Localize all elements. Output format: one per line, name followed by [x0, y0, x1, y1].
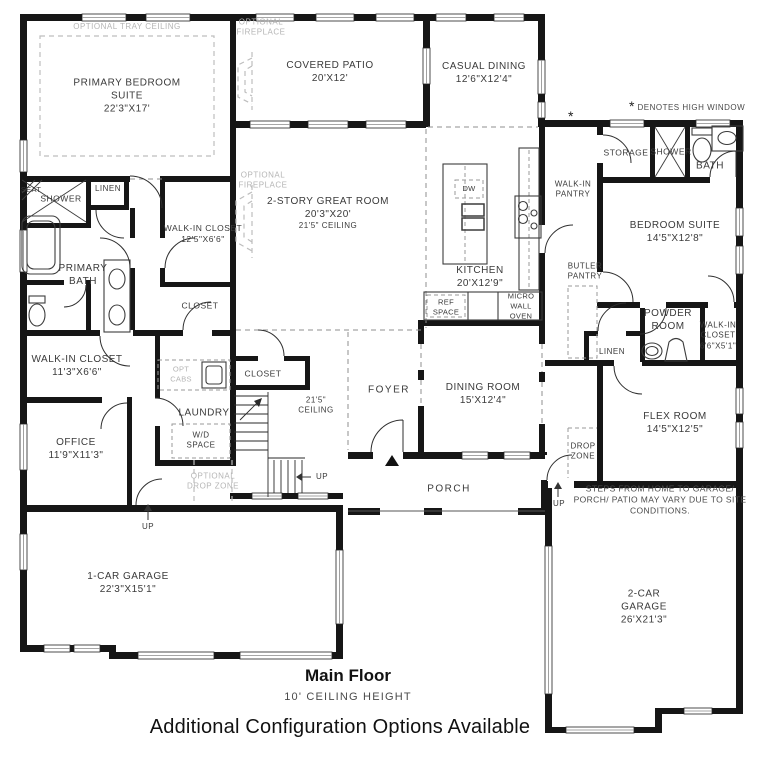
asterisk-icon: * — [629, 101, 634, 111]
hall-toilet — [692, 128, 712, 135]
ceiling-height-note: 10' CEILING HEIGHT — [284, 691, 412, 703]
room-walk-in-closet-primary: WALK-IN CLOSET 12'5"X6'6" — [162, 223, 244, 245]
optional-fireplace-label-patio: OPTIONAL FIREPLACE — [230, 18, 292, 39]
label-ref-space: REF SPACE — [429, 297, 463, 317]
front-door-marker — [385, 455, 399, 466]
room-walk-in-closet-hall: WALK-IN CLOSET 11'3"X6'6" — [31, 353, 123, 379]
powder-toilet — [665, 339, 687, 362]
room-butler-pantry: BUTLER PANTRY — [561, 262, 609, 283]
floor-plan-page: OPTIONAL TRAY CEILING PRIMARY BEDROOM SU… — [0, 0, 767, 771]
room-drop-zone: DROP ZONE — [565, 442, 601, 463]
kitchen-island — [443, 164, 487, 264]
label-micro-wall-oven: MICRO WALL OVEN — [502, 291, 540, 320]
optional-tray-ceiling-label: OPTIONAL TRAY CEILING — [42, 22, 212, 32]
room-primary-bedroom-suite: PRIMARY BEDROOM SUITE 22'3"X17' — [61, 77, 193, 116]
room-hall-closet: CLOSET — [170, 300, 230, 311]
room-foyer: FOYER — [354, 384, 424, 397]
room-office: OFFICE 11'9"X11'3" — [30, 436, 122, 462]
optional-fireplace-great-room — [236, 185, 252, 258]
site-conditions-note: STEPS FROM HOME TO GARAGE/ PORCH/ PATIO … — [572, 483, 748, 516]
room-kitchen: KITCHEN 20'X12'9" — [433, 264, 527, 290]
optional-fireplace-patio — [238, 52, 252, 110]
front-door — [371, 420, 403, 452]
room-primary-bath: PRIMARY BATH — [47, 262, 119, 288]
room-great-room: 2-STORY GREAT ROOM 20'3"X20' 21'5" CEILI… — [262, 195, 394, 231]
primary-toilet — [29, 296, 45, 303]
label-up-garage: UP — [136, 522, 160, 532]
room-name: PRIMARY BEDROOM SUITE — [61, 77, 193, 103]
room-dims: 22'3"X17' — [61, 103, 193, 116]
label-up-stairs: UP — [310, 472, 334, 482]
room-bedroom-suite: BEDROOM SUITE 14'5"X12'8" — [623, 219, 727, 245]
high-window-asterisk: * — [568, 108, 573, 124]
label-primary-shower: SHOWER — [31, 193, 91, 204]
room-hall-linen: LINEN — [589, 347, 635, 357]
room-hall-shower: SHOWER — [639, 146, 703, 157]
room-dining-room: DINING ROOM 15'X12'4" — [443, 381, 523, 407]
room-porch: PORCH — [409, 483, 489, 496]
label-opt-cabs: OPT CABS — [164, 364, 198, 384]
label-wd-space: W/D SPACE — [180, 431, 222, 452]
stair-arrowhead — [254, 398, 262, 407]
room-hall-bath: BATH — [685, 160, 735, 173]
room-flex-room: FLEX ROOM 14'5"X12'5" — [625, 410, 725, 436]
room-stair-closet: CLOSET — [233, 368, 293, 379]
room-walk-in-closet-bedroom: WALK-IN CLOSET 6'6"X5'1" — [689, 320, 747, 351]
room-laundry: LAUNDRY — [164, 407, 244, 420]
room-one-car-garage: 1-CAR GARAGE 22'3"X15'1" — [63, 570, 193, 596]
floor-title: Main Floor — [305, 666, 391, 686]
room-casual-dining: CASUAL DINING 12'6"X12'4" — [438, 60, 530, 86]
high-window-note: * DENOTES HIGH WINDOW — [629, 101, 745, 112]
label-up-porch: UP — [547, 499, 571, 509]
label-primary-linen: LINEN — [85, 184, 131, 194]
room-two-car-garage: 2-CAR GARAGE 26'X21'3" — [609, 588, 679, 627]
label-dishwasher: DW — [454, 184, 484, 194]
optional-drop-zone-label: OPTIONAL DROP ZONE — [187, 472, 239, 493]
room-walk-in-pantry: WALK-IN PANTRY — [545, 180, 601, 201]
configuration-note: Additional Configuration Options Availab… — [150, 716, 531, 739]
room-covered-patio: COVERED PATIO 20'X12' — [284, 59, 376, 85]
optional-fireplace-label-great-room: OPTIONAL FIREPLACE — [232, 171, 294, 192]
label-stair-ceiling: 21'5" CEILING — [294, 396, 338, 417]
